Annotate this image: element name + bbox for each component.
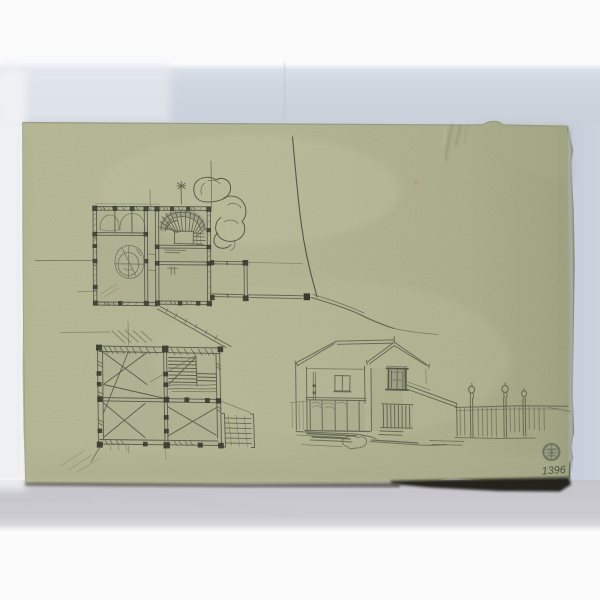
svg-text:1396: 1396 — [541, 464, 566, 478]
